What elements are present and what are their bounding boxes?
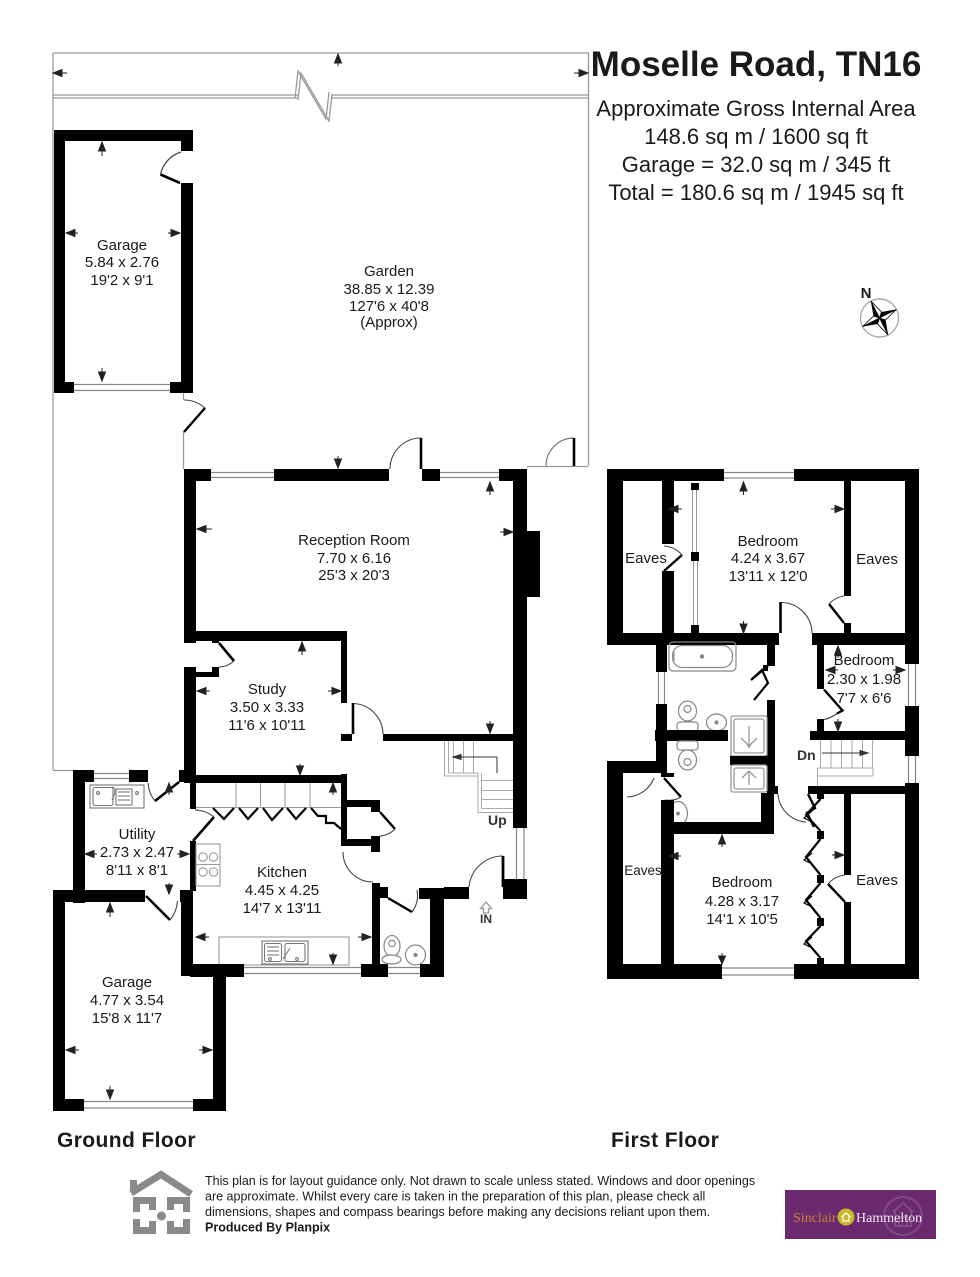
svg-text:Eaves: Eaves xyxy=(856,551,898,568)
svg-text:Moselle Road, TN16: Moselle Road, TN16 xyxy=(591,45,922,84)
svg-text:4.45 x 4.25: 4.45 x 4.25 xyxy=(245,882,319,899)
svg-text:Bedroom: Bedroom xyxy=(712,874,773,891)
svg-text:Study: Study xyxy=(248,681,287,698)
svg-text:25'3 x 20'3: 25'3 x 20'3 xyxy=(318,567,390,584)
svg-text:7'7 x 6'6: 7'7 x 6'6 xyxy=(837,690,892,707)
svg-text:Garage: Garage xyxy=(102,974,152,991)
svg-text:Up: Up xyxy=(488,812,507,828)
svg-text:38.85 x 12.39: 38.85 x 12.39 xyxy=(344,281,435,298)
svg-text:Bedroom: Bedroom xyxy=(834,652,895,669)
svg-text:Total = 180.6 sq m / 1945 sq f: Total = 180.6 sq m / 1945 sq ft xyxy=(608,180,903,205)
svg-text:19'2 x 9'1: 19'2 x 9'1 xyxy=(90,272,153,289)
svg-text:Dn: Dn xyxy=(797,747,816,763)
svg-text:2.30 x 1.98: 2.30 x 1.98 xyxy=(827,671,901,688)
svg-text:Eaves: Eaves xyxy=(856,872,898,889)
svg-text:Bedroom: Bedroom xyxy=(738,533,799,550)
svg-text:Kitchen: Kitchen xyxy=(257,864,307,881)
svg-text:148.6 sq m / 1600 sq ft: 148.6 sq m / 1600 sq ft xyxy=(644,124,868,149)
svg-text:dimensions, shapes and compass: dimensions, shapes and compass bearings … xyxy=(205,1205,710,1219)
svg-text:2.73 x 2.47: 2.73 x 2.47 xyxy=(100,844,174,861)
svg-text:(Approx): (Approx) xyxy=(360,314,418,331)
svg-text:Eaves: Eaves xyxy=(624,863,662,878)
svg-text:14'7 x 13'11: 14'7 x 13'11 xyxy=(243,900,322,917)
svg-text:4.77 x 3.54: 4.77 x 3.54 xyxy=(90,992,164,1009)
svg-text:Eaves: Eaves xyxy=(625,550,667,567)
svg-text:14'1 x 10'5: 14'1 x 10'5 xyxy=(706,911,778,928)
svg-text:4.28 x 3.17: 4.28 x 3.17 xyxy=(705,893,779,910)
svg-text:Reception Room: Reception Room xyxy=(298,532,410,549)
svg-text:Approximate Gross Internal Are: Approximate Gross Internal Area xyxy=(596,96,916,121)
svg-text:Garage = 32.0 sq m / 345 ft: Garage = 32.0 sq m / 345 ft xyxy=(622,152,890,177)
svg-text:4.24 x 3.67: 4.24 x 3.67 xyxy=(731,550,805,567)
svg-text:13'11 x 12'0: 13'11 x 12'0 xyxy=(729,568,808,585)
svg-text:7.70 x 6.16: 7.70 x 6.16 xyxy=(317,550,391,567)
svg-text:127'6 x 40'8: 127'6 x 40'8 xyxy=(349,298,429,315)
svg-text:Produced By Planpix: Produced By Planpix xyxy=(205,1221,330,1235)
svg-text:First Floor: First Floor xyxy=(611,1129,719,1152)
svg-text:Utility: Utility xyxy=(119,826,156,843)
svg-text:Garage: Garage xyxy=(97,237,147,254)
svg-text:Sinclair: Sinclair xyxy=(793,1211,837,1226)
svg-text:This plan is for layout guidan: This plan is for layout guidance only. N… xyxy=(205,1174,755,1188)
svg-text:8'11 x 8'1: 8'11 x 8'1 xyxy=(106,862,168,879)
svg-text:11'6 x 10'11: 11'6 x 10'11 xyxy=(228,717,306,734)
svg-text:N: N xyxy=(861,285,872,302)
svg-text:Garden: Garden xyxy=(364,263,414,280)
svg-text:Ground Floor: Ground Floor xyxy=(57,1129,196,1152)
svg-text:Hammelton: Hammelton xyxy=(856,1211,922,1226)
svg-text:5.84 x 2.76: 5.84 x 2.76 xyxy=(85,254,159,271)
svg-text:IN: IN xyxy=(480,912,492,926)
svg-text:15'8 x 11'7: 15'8 x 11'7 xyxy=(92,1010,163,1027)
svg-text:are approximate. Whilst every: are approximate. Whilst every care is ta… xyxy=(205,1190,705,1204)
svg-text:3.50 x 3.33: 3.50 x 3.33 xyxy=(230,699,304,716)
